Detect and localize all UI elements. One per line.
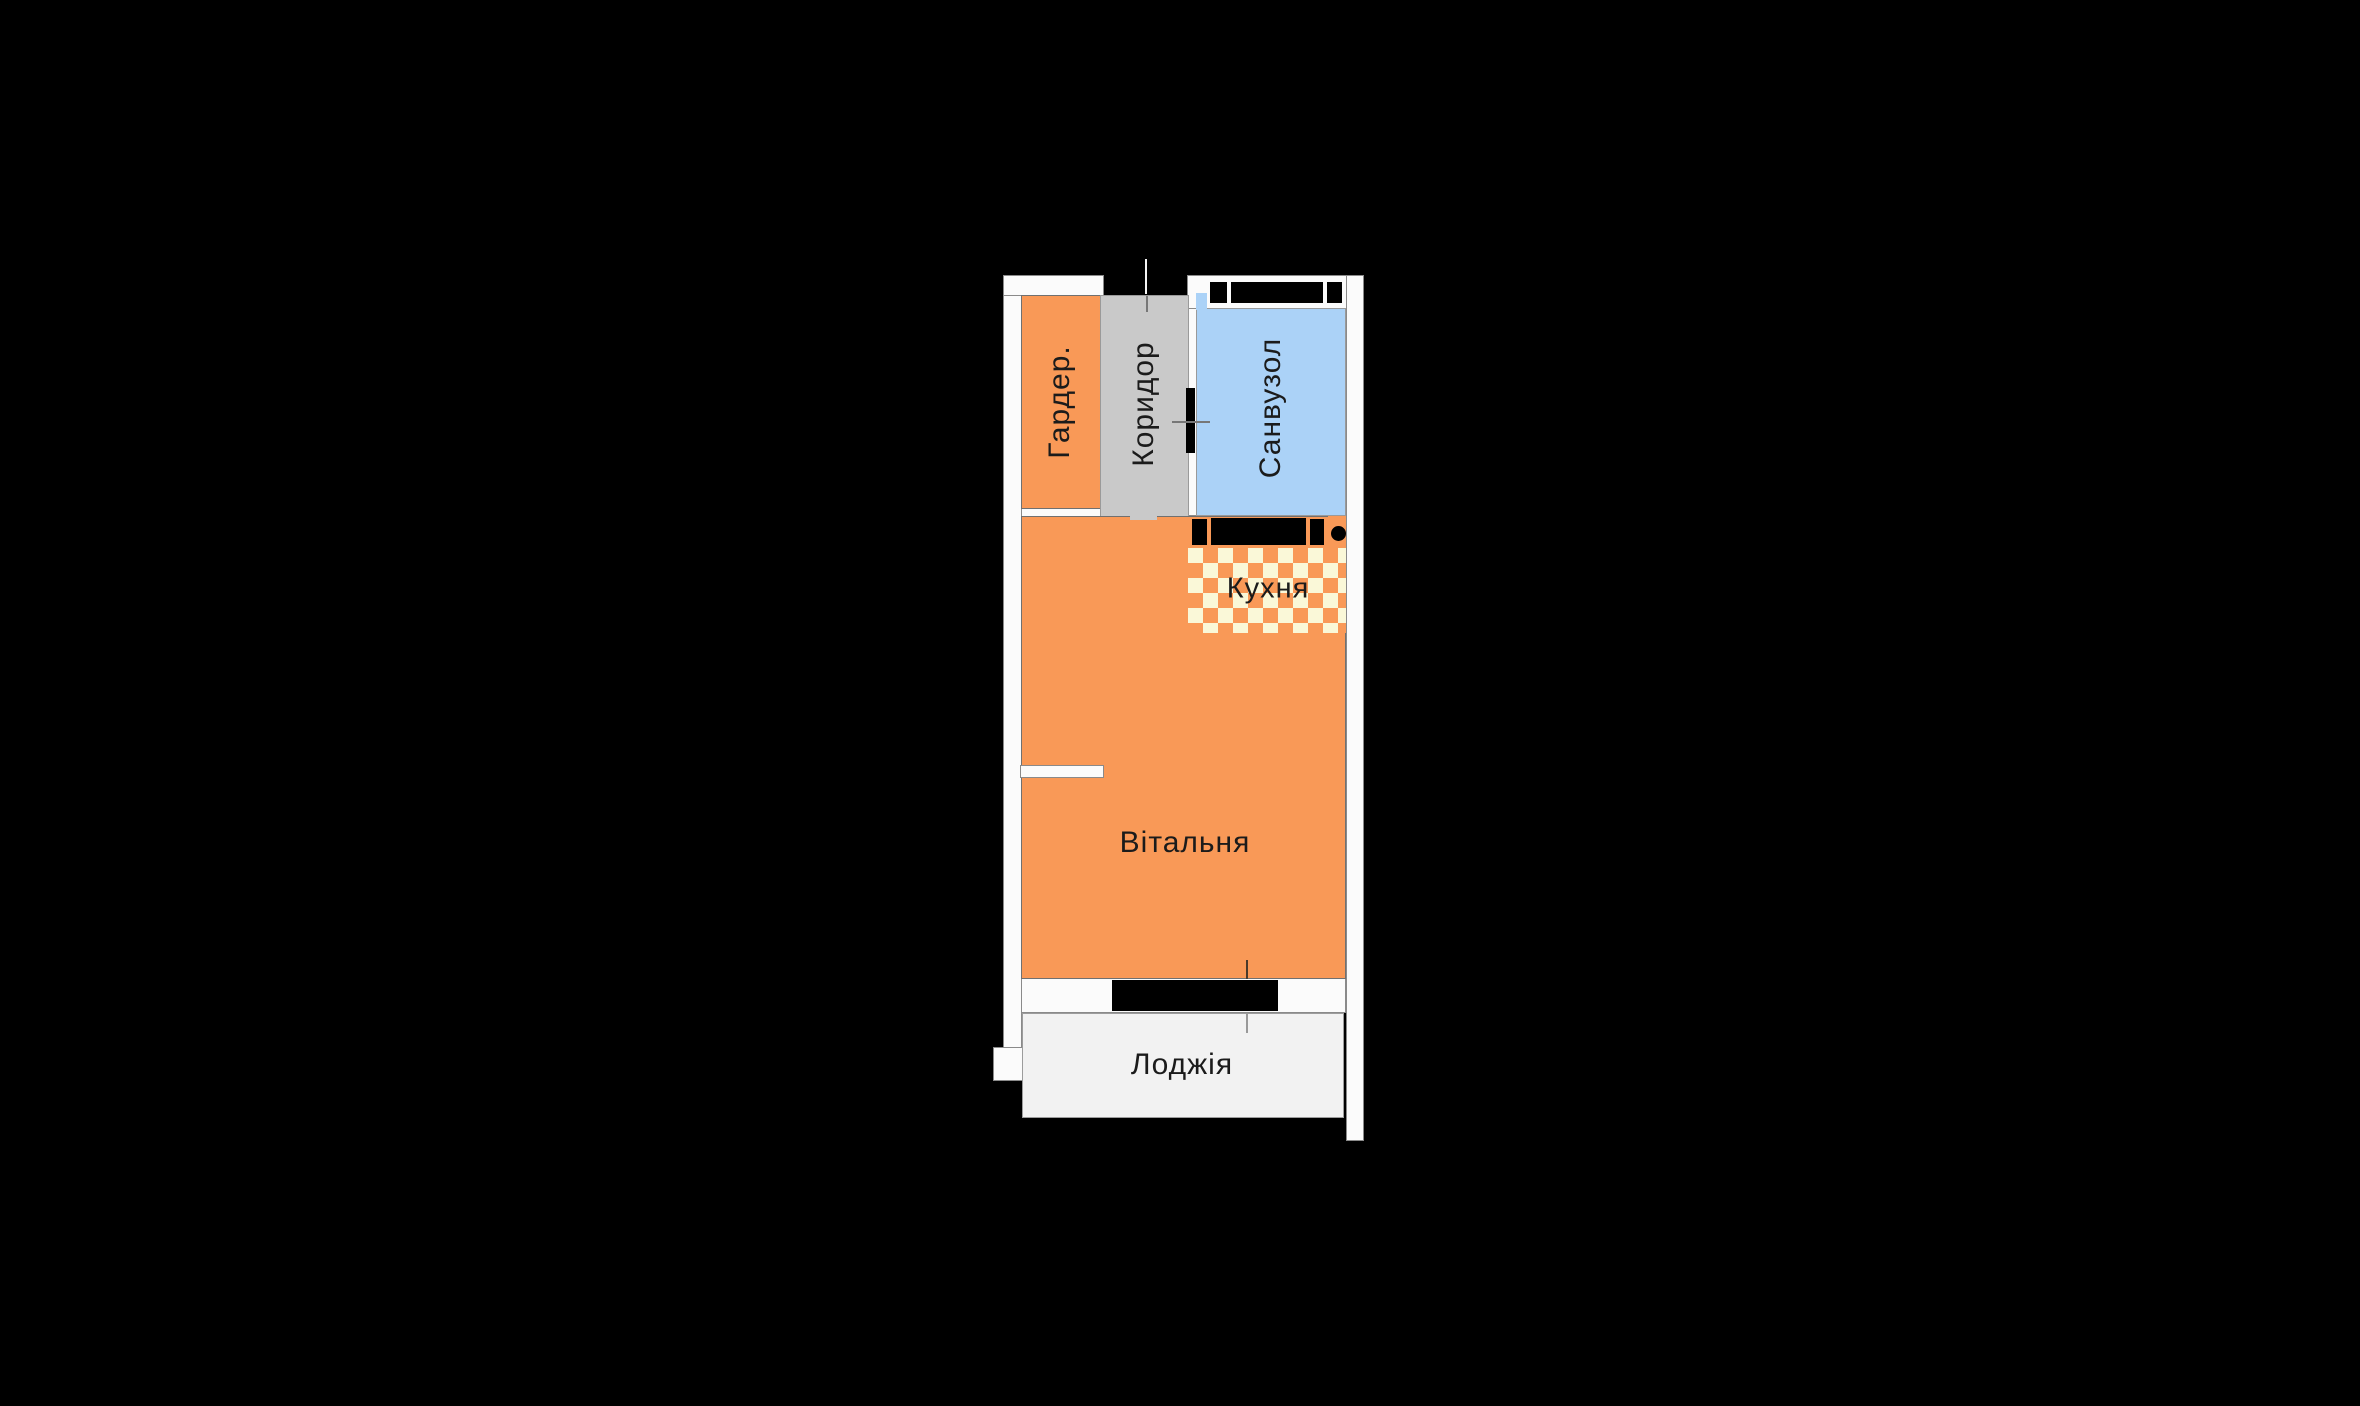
wall-left-notch: [993, 1047, 1023, 1081]
entry-door-leaf-mark: [1145, 259, 1147, 294]
pipe-riser-circle: [1331, 526, 1346, 541]
wall-top-left-band: [1003, 275, 1104, 296]
wall-right-band: [1346, 275, 1364, 1141]
vent-shaft-top-right: [1327, 282, 1342, 303]
vent-shaft-bottom-right: [1310, 519, 1324, 545]
balcony-window-block: [1112, 980, 1278, 1011]
vent-shaft-bottom-center: [1211, 518, 1306, 545]
wall-left-band: [1003, 275, 1022, 1048]
corridor-passage-opening: [1130, 513, 1157, 520]
vent-shaft-top-left: [1210, 282, 1227, 303]
room-label-wardrobe: Гардер.: [1043, 345, 1077, 458]
vent-shaft-top-center: [1231, 282, 1323, 303]
floor-plan: Гардер. Коридор Санвузол Кухня Вітальня …: [0, 0, 2360, 1406]
room-label-kitchen: Кухня: [1227, 573, 1310, 606]
balcony-door-mark-lower: [1246, 1013, 1248, 1033]
room-label-living: Вітальня: [1120, 826, 1251, 860]
room-label-loggia: Лоджія: [1131, 1048, 1233, 1082]
entry-door-swing-mark: [1146, 296, 1148, 312]
vent-shaft-bottom-left: [1192, 519, 1207, 545]
balcony-door-mark-upper: [1246, 960, 1248, 979]
wall-stub-living-room: [1020, 765, 1104, 778]
room-bathroom-notch: [1196, 293, 1207, 310]
room-label-bathroom: Санвузол: [1254, 338, 1288, 478]
room-label-corridor: Коридор: [1127, 341, 1161, 466]
bathroom-door-swing-mark: [1172, 421, 1210, 423]
